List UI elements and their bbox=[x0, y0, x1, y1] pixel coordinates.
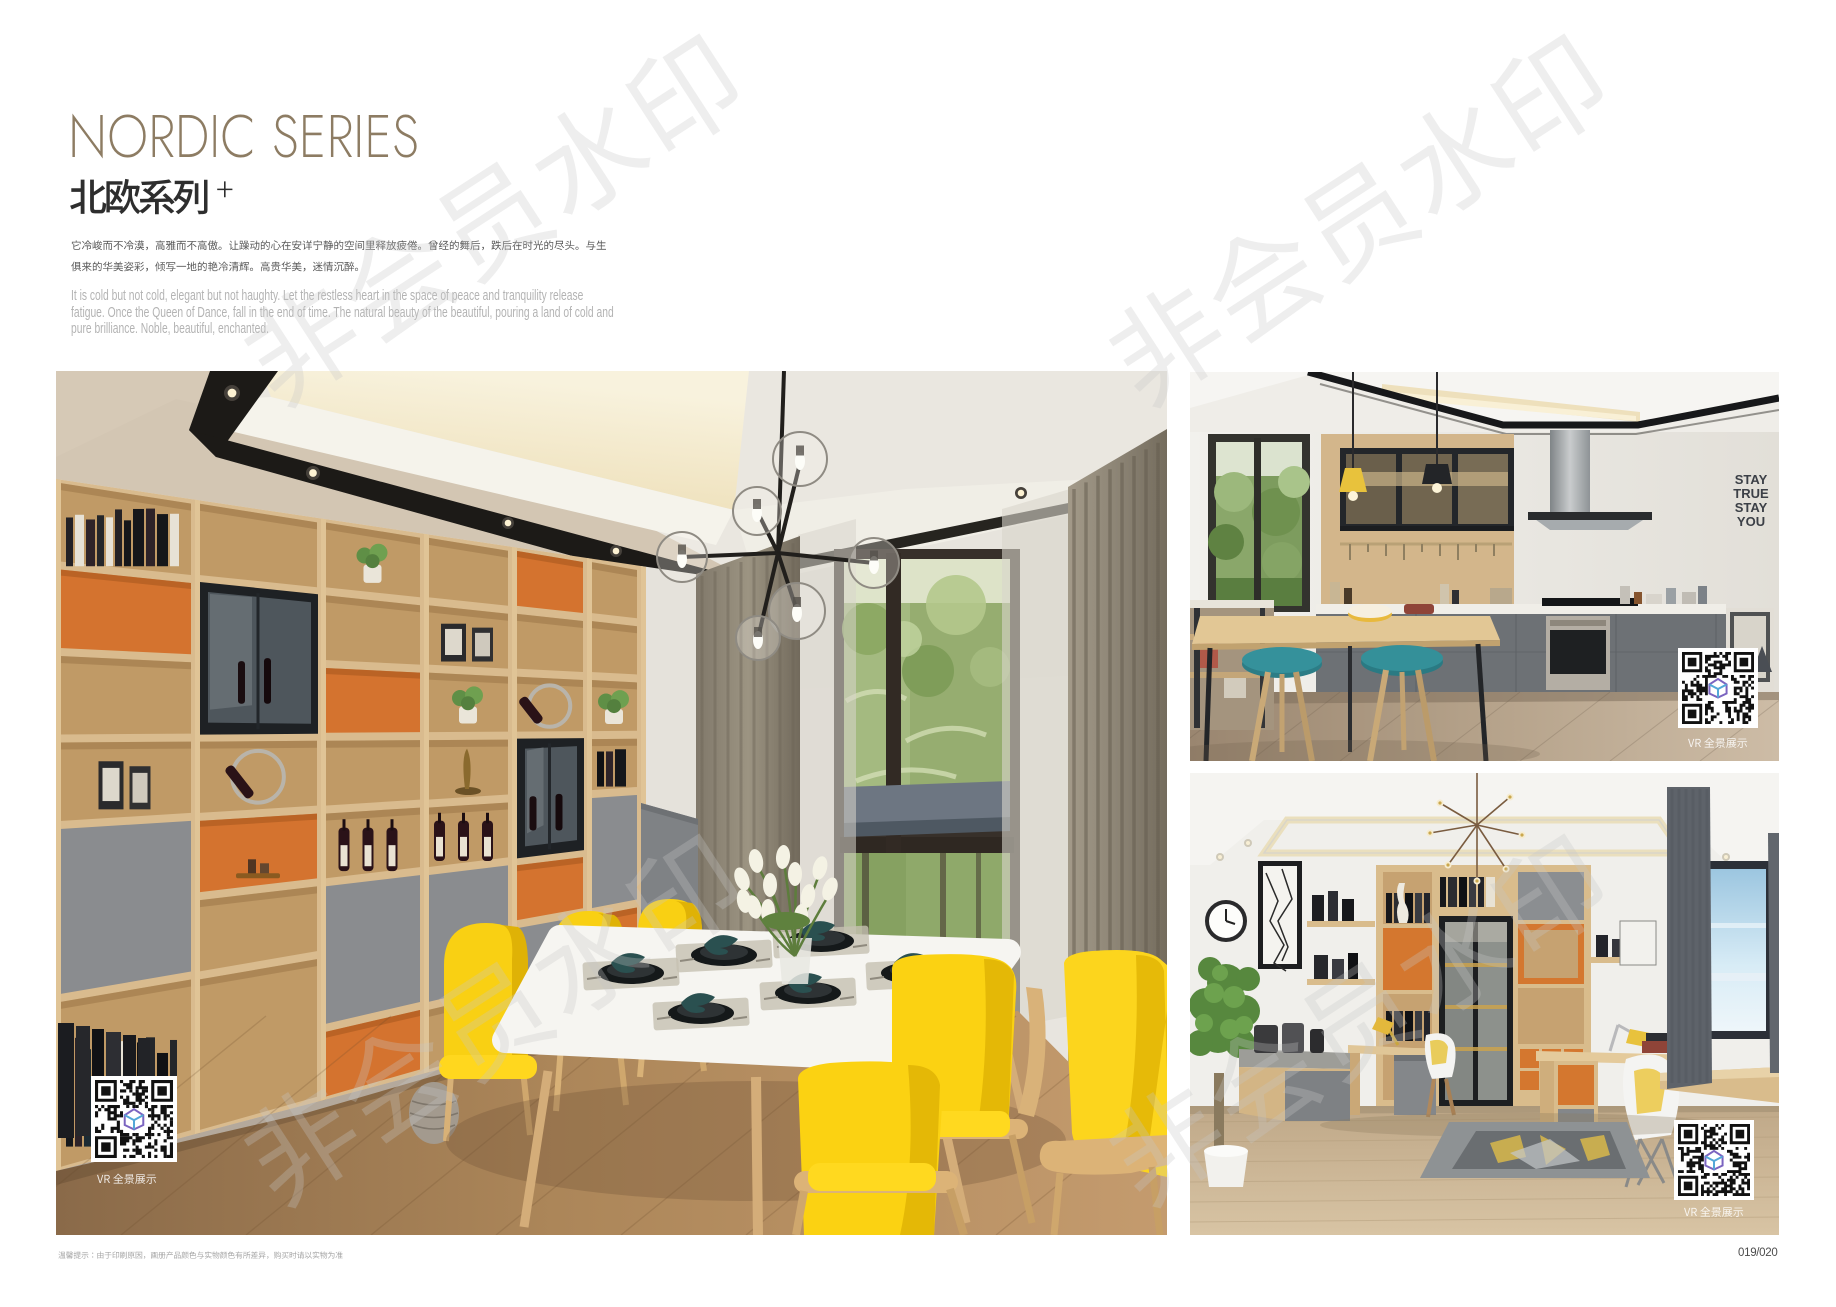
svg-text:STAY: STAY bbox=[1735, 500, 1768, 515]
svg-text:TRUE: TRUE bbox=[1733, 486, 1769, 501]
svg-text:YOU: YOU bbox=[1737, 514, 1765, 529]
svg-text:STAY: STAY bbox=[1735, 472, 1768, 487]
